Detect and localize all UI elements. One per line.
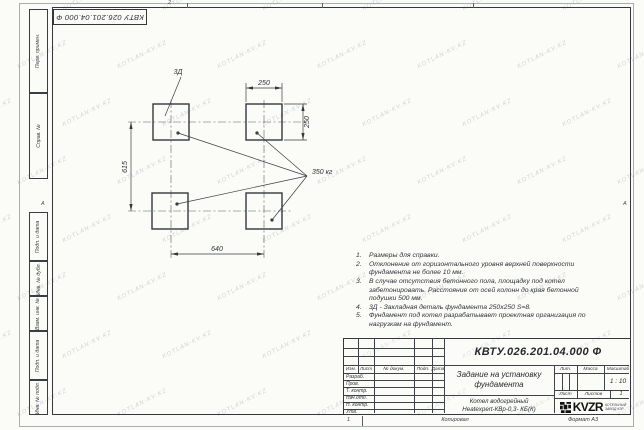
notes-list: 1. Размеры для справки. 2. Отклонение от…: [356, 252, 592, 330]
row-dept-head: Нач.отд.: [346, 395, 374, 402]
doc-code-stamp-text: КВТУ 026.201.04.000 Ф: [56, 13, 144, 22]
row-tcontrol: Т. контр.: [346, 387, 374, 394]
drawing-sheet: KOTLAN-KV.KZKOTLAN-KV.KZKOTLAN-KV.KZKOTL…: [0, 0, 644, 430]
note-item: 3. В случае отсутствия бетонного пола, п…: [356, 278, 592, 304]
kvzr-logo-icon: [560, 402, 571, 413]
margin-field-repl-inv: Взам. инв. №: [29, 296, 48, 331]
margin-field-ref-number: Справ. №: [29, 93, 48, 179]
margin-field-inv-orig: Инв. № подл.: [29, 380, 48, 415]
zone-number-top: 2: [168, 0, 171, 6]
lit-label: Лит.: [554, 365, 577, 373]
sheets-label: Листов: [577, 390, 610, 398]
col-sign: Подп.: [414, 365, 432, 373]
row-approved: Утв.: [346, 409, 374, 416]
margin-field-inv-dup: Инв. № дубл.: [29, 261, 48, 296]
doc-code-stamp-rotated: КВТУ 026.201.04.000 Ф: [53, 9, 147, 25]
row-developed: Разраб.: [346, 373, 374, 380]
col-docnum: № докум.: [374, 365, 414, 373]
fold-mark-tick: [187, 3, 188, 8]
product-name: Котел водогрейный Heatexpert-КВр-0,3- КБ…: [444, 395, 554, 416]
col-izm: Изм.: [344, 365, 358, 373]
footer-format-label: Формат А3: [548, 417, 618, 423]
mass-label: Масса: [577, 365, 604, 373]
sheets-value: 1: [610, 390, 632, 398]
zone-letter-left: А: [41, 201, 45, 207]
zone-letter-right: А: [623, 201, 627, 207]
margin-field-first-use: Перв. примен.: [29, 9, 48, 93]
row-ncontrol: Н. контр.: [346, 402, 374, 409]
fold-mark-tick: [473, 3, 474, 8]
document-title: Задание на установку фундамента: [444, 365, 554, 395]
sheet-label: Лист: [554, 390, 577, 398]
logo-caption: КОТЕЛЬНЫЙ ЗАВОД КЗР: [605, 403, 626, 411]
fold-mark-tick: [322, 3, 323, 8]
logo-text: KVZR: [573, 400, 603, 414]
title-block: КВТУ.026.201.04.000 Ф Изм. Лист № докум.…: [343, 338, 631, 415]
col-list: Лист: [358, 365, 374, 373]
row-checked: Пров.: [346, 380, 374, 387]
company-logo: KVZR КОТЕЛЬНЫЙ ЗАВОД КЗР: [554, 398, 632, 416]
note-item: 2. Отклонение от горизонтального уровня …: [356, 261, 592, 278]
margin-field-sign-date-2: Подп. и дата: [29, 331, 48, 380]
footer-copied-label: Копировал: [415, 417, 495, 423]
note-item: 5. Фундамент под котел разрабатывает про…: [356, 312, 592, 329]
scale-label: Масштаб: [604, 365, 632, 373]
margin-field-sign-date-1: Подп. и дата: [29, 212, 48, 261]
doc-code: КВТУ.026.201.04.000 Ф: [444, 339, 632, 365]
note-item: 1. Размеры для справки.: [356, 252, 592, 261]
scale-value: 1 : 10: [604, 373, 632, 390]
footer-divider-tick: [362, 416, 363, 426]
footer-fold-mark: 1: [347, 417, 350, 423]
col-date: Дата: [432, 365, 444, 373]
